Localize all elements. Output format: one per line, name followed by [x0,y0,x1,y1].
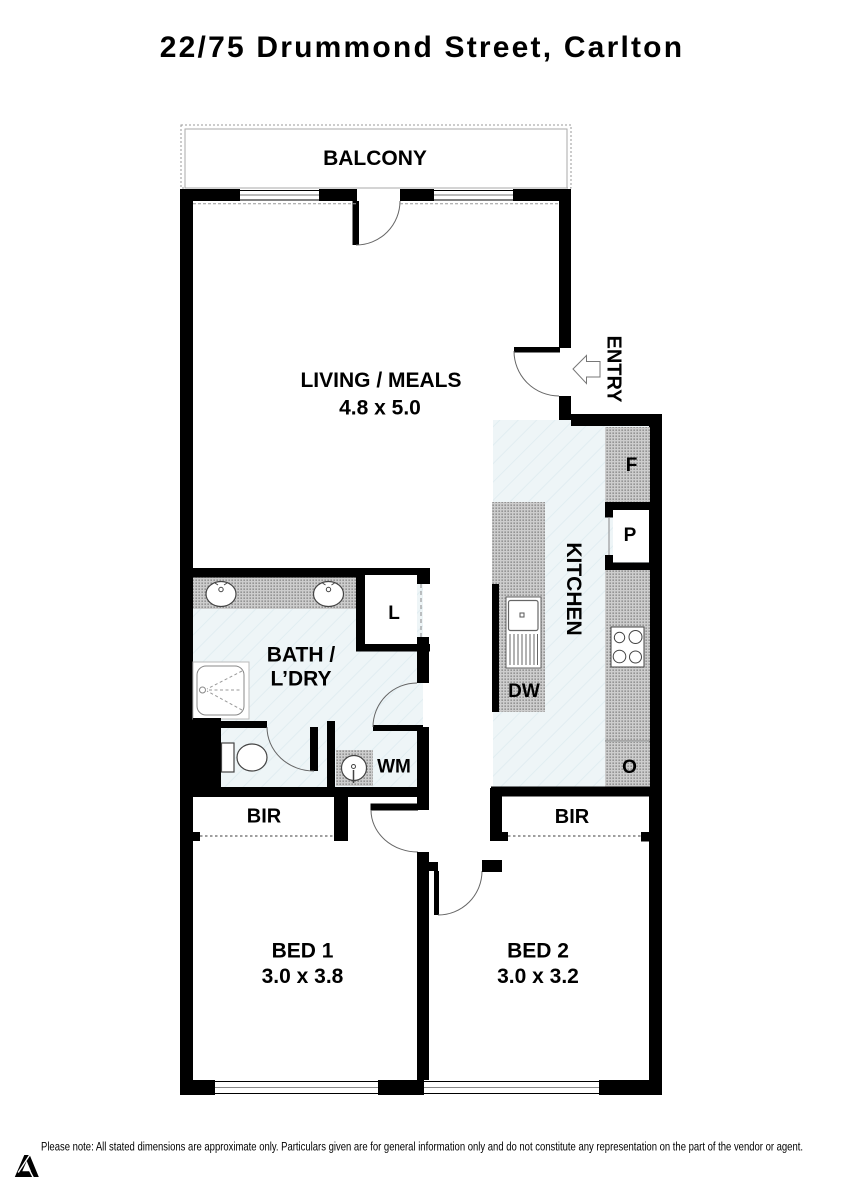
svg-text:22/75 Drummond Street, Carlton: 22/75 Drummond Street, Carlton [160,31,684,64]
svg-text:F: F [626,455,638,476]
svg-text:P: P [624,525,637,546]
svg-text:BATH /: BATH / [267,644,336,667]
svg-text:3.0 x 3.2: 3.0 x 3.2 [497,965,579,988]
svg-text:BED 1: BED 1 [272,940,334,963]
svg-text:BIR: BIR [555,806,590,828]
svg-text:DW: DW [508,681,540,702]
svg-text:BALCONY: BALCONY [323,147,427,170]
svg-text:3.0 x 3.8: 3.0 x 3.8 [262,965,344,988]
svg-text:KITCHEN: KITCHEN [562,542,585,635]
svg-text:LIVING / MEALS: LIVING / MEALS [300,369,461,392]
svg-text:BIR: BIR [247,806,282,828]
svg-text:Please note: All stated dimens: Please note: All stated dimensions are a… [41,1140,803,1154]
svg-text:ENTRY: ENTRY [603,335,625,403]
svg-text:L: L [388,603,400,624]
svg-text:L’DRY: L’DRY [270,668,331,691]
svg-text:BED 2: BED 2 [507,940,569,963]
svg-text:O: O [622,757,637,778]
svg-text:WM: WM [377,757,411,778]
svg-text:4.8 x 5.0: 4.8 x 5.0 [339,397,421,420]
